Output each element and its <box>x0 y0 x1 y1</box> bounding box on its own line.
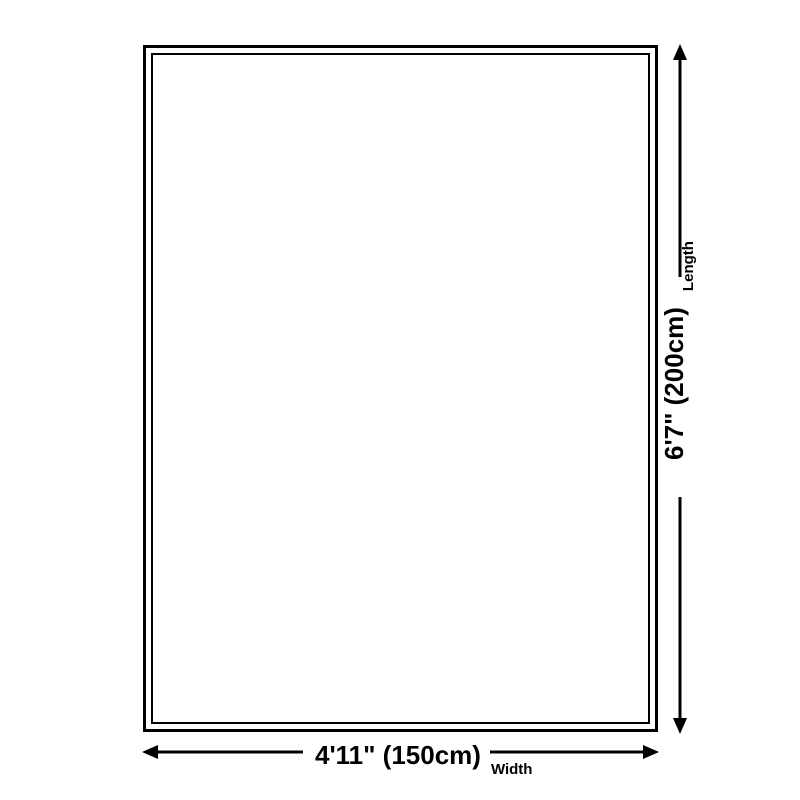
length-value: 6'7" (200cm) <box>659 307 689 460</box>
arrow-down-icon <box>673 718 687 734</box>
width-dimension-label: 4'11" (150cm)Width <box>315 739 532 771</box>
arrow-right-icon <box>643 745 659 759</box>
size-diagram: 4'11" (150cm)Width 6'7" (200cm)Length <box>0 0 800 800</box>
width-value: 4'11" (150cm) <box>315 740 481 770</box>
length-unit-label: Length <box>680 241 697 291</box>
length-dimension-label: 6'7" (200cm)Length <box>658 250 690 460</box>
width-unit-label: Width <box>491 761 533 778</box>
